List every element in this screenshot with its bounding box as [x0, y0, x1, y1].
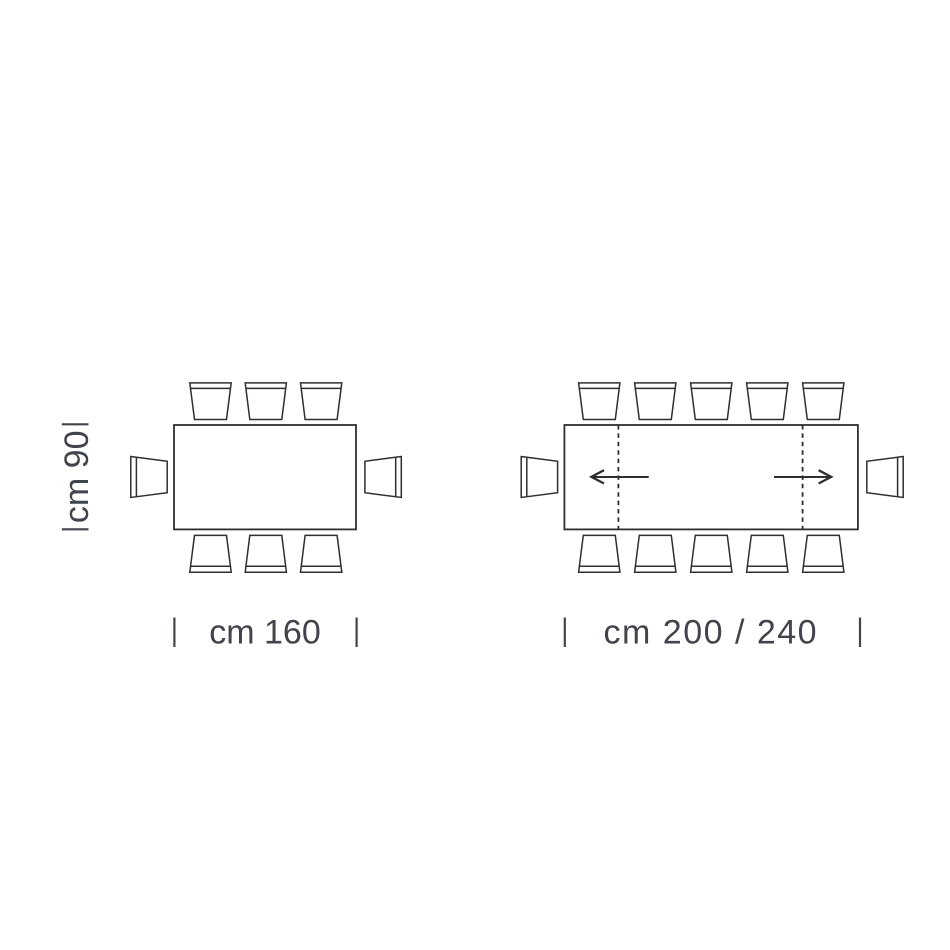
svg-text:cm 200 / 240: cm 200 / 240: [604, 614, 819, 652]
svg-text:cm 90: cm 90: [58, 431, 96, 524]
svg-text:cm 160: cm 160: [209, 614, 321, 652]
